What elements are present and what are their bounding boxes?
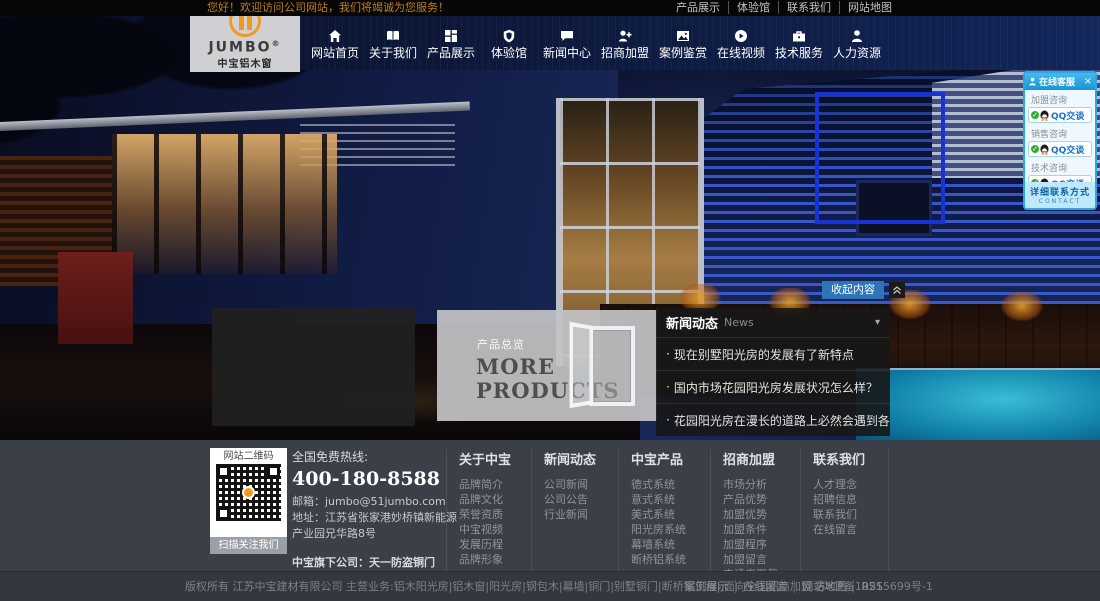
footer-column-title[interactable]: 联系我们 (813, 449, 888, 468)
footer-link[interactable]: 加盟留言 (723, 552, 800, 567)
footer-link[interactable]: 阳光房系统 (631, 522, 710, 537)
footer-link[interactable]: 加盟条件 (723, 522, 800, 537)
more-products-title: MORE (476, 354, 555, 379)
bottom-bar: 版权所有 江苏中宝建材有限公司 主营业务:铝木阳光房|铝木窗|阳光房|钢包木|幕… (0, 571, 1100, 601)
hotline-number: 400-180-8588 (292, 468, 460, 490)
bottom-link-message[interactable]: 在线留言 (735, 580, 794, 593)
email-line: 邮箱：jumbo@51jumbo.com (292, 494, 460, 510)
footer-column-title[interactable]: 新闻动态 (544, 449, 618, 468)
logo-brand: JUMBO® (190, 37, 300, 55)
bottom-link-cases[interactable]: 案例展示 (677, 580, 735, 593)
footer-column-news: 新闻动态 公司新闻 公司公告 行业新闻 (531, 449, 618, 582)
footer-link[interactable]: 招聘信息 (813, 492, 888, 507)
footer-link[interactable]: 美式系统 (631, 507, 710, 522)
detailed-contact-button[interactable]: 详细联系方式 CONTACT (1025, 182, 1095, 208)
footer-link[interactable]: 公司公告 (544, 492, 618, 507)
address-line: 地址：江苏省张家港妙桥镇新能源产业园兄华路8号 (292, 510, 460, 542)
topbar-link-sitemap[interactable]: 网站地图 (839, 1, 900, 14)
qq-penguin-icon (1039, 144, 1050, 155)
hotline-label: 全国免费热线: (292, 448, 460, 465)
footer-columns: 关于中宝 品牌简介 品牌文化 荣誉资质 中宝视频 发展历程 品牌形象 新闻动态 … (446, 449, 889, 582)
footer-link[interactable]: 联系我们 (813, 507, 888, 522)
hero-photo: 网站首页 关于我们 产品展示 体验馆 新闻中心 招商加盟 (0, 16, 1100, 440)
nav-item-cases[interactable]: 案例鉴赏 (655, 16, 711, 70)
nav-label: 在线视频 (713, 44, 769, 61)
topbar-link-experience[interactable]: 体验馆 (728, 1, 778, 14)
nav-label: 案例鉴赏 (655, 44, 711, 61)
nav-item-hr[interactable]: 人力资源 (829, 16, 885, 70)
nav-label: 新闻中心 (539, 44, 595, 61)
briefcase-icon (771, 25, 827, 41)
nav-item-videos[interactable]: 在线视频 (713, 16, 769, 70)
qq-chat-button-franchise[interactable]: ✓ QQ交谈 (1028, 107, 1092, 123)
footer-link[interactable]: 荣誉资质 (459, 507, 531, 522)
footer-column-title[interactable]: 关于中宝 (459, 449, 531, 468)
person-icon (1028, 77, 1037, 86)
registered-mark: ® (272, 39, 282, 48)
products-tag: 产品总览 (477, 336, 525, 352)
nav-item-home[interactable]: 网站首页 (307, 16, 363, 70)
shield-icon (481, 25, 537, 41)
news-item[interactable]: 花园阳光房在漫长的道路上必然会遇到各种挑战 (656, 403, 890, 436)
online-status-icon: ✓ (1031, 145, 1039, 153)
news-title: 新闻动态 (666, 313, 718, 332)
footer-column-franchise: 招商加盟 市场分析 产品优势 加盟优势 加盟条件 加盟程序 加盟留言 申请表下载 (710, 449, 800, 582)
double-chevron-up-icon (892, 285, 902, 295)
footer-link[interactable]: 品牌文化 (459, 492, 531, 507)
play-icon (713, 25, 769, 41)
qq-penguin-icon (1039, 110, 1050, 121)
grid-icon (423, 25, 479, 41)
footer-link[interactable]: 产品优势 (723, 492, 800, 507)
bottom-link-rss[interactable]: RSS (853, 580, 890, 593)
detailed-contact-sub: CONTACT (1025, 198, 1095, 205)
footer-link[interactable]: 发展历程 (459, 537, 531, 552)
news-header: 新闻动态 News ▾ (656, 308, 890, 337)
nav-label: 技术服务 (771, 44, 827, 61)
topbar-links: 产品展示体验馆联系我们网站地图 (668, 0, 900, 16)
footer-link[interactable]: 人才理念 (813, 477, 888, 492)
nav-label: 人力资源 (829, 44, 885, 61)
online-service-title: 在线客服 (1039, 75, 1075, 88)
nav-item-tech-service[interactable]: 技术服务 (771, 16, 827, 70)
footer-contact-block: 全国免费热线: 400-180-8588 邮箱：jumbo@51jumbo.co… (292, 448, 460, 570)
qr-center-logo (242, 486, 255, 499)
nav-label: 产品展示 (423, 44, 479, 61)
nav-item-about[interactable]: 关于我们 (365, 16, 421, 70)
bottom-link-sitemap[interactable]: 网站地图 (794, 580, 853, 593)
welcome-text: 您好！欢迎访问公司网站，我们将竭诚为您服务！ (207, 0, 449, 16)
footer-link[interactable]: 意式系统 (631, 492, 710, 507)
photo-icon (655, 25, 711, 41)
qr-code-image (216, 464, 281, 521)
more-products-panel[interactable]: 产品总览 MORE PRODUCTS (437, 310, 657, 421)
qq-chat-button-sales[interactable]: ✓ QQ交谈 (1028, 141, 1092, 157)
book-icon (365, 25, 421, 41)
footer-link[interactable]: 品牌简介 (459, 477, 531, 492)
user-icon (829, 25, 885, 41)
footer-link[interactable]: 德式系统 (631, 477, 710, 492)
footer-column-about: 关于中宝 品牌简介 品牌文化 荣誉资质 中宝视频 发展历程 品牌形象 (446, 449, 531, 582)
nav-label: 网站首页 (307, 44, 363, 61)
footer-link[interactable]: 市场分析 (723, 477, 800, 492)
news-subtitle: News (724, 316, 754, 329)
online-status-icon: ✓ (1031, 111, 1039, 119)
nav-label: 关于我们 (365, 44, 421, 61)
detailed-contact-label: 详细联系方式 (1025, 185, 1095, 198)
footer-link[interactable]: 幕墙系统 (631, 537, 710, 552)
dark-overlay-panel (212, 308, 415, 426)
news-item[interactable]: 现在别墅阳光房的发展有了新特点 (656, 337, 890, 370)
footer-column-contact: 联系我们 人才理念 招聘信息 联系我们 在线留言 (800, 449, 888, 582)
chevron-down-icon[interactable]: ▾ (875, 317, 880, 328)
nav-label: 招商加盟 (597, 44, 653, 61)
footer-link[interactable]: 加盟程序 (723, 537, 800, 552)
bottom-links: 案例展示在线留言网站地图RSS (677, 572, 890, 601)
footer-link[interactable]: 行业新闻 (544, 507, 618, 522)
nav-item-franchise[interactable]: 招商加盟 (597, 16, 653, 70)
news-item[interactable]: 国内市场花园阳光房发展状况怎么样？ (656, 370, 890, 403)
selection-rectangle (815, 92, 945, 224)
footer-column-title[interactable]: 中宝产品 (631, 449, 710, 468)
online-service-panel: 在线客服 × 加盟咨询 ✓ QQ交谈 销售咨询 ✓ QQ交谈 技术咨询 ✓ QQ… (1023, 71, 1097, 210)
news-panel: 新闻动态 News ▾ 现在别墅阳光房的发展有了新特点 国内市场花园阳光房发展状… (656, 308, 890, 436)
qr-title: 网站二维码 (210, 448, 287, 464)
qq-chat-label: QQ交谈 (1051, 109, 1084, 122)
footer-column-title[interactable]: 招商加盟 (723, 449, 800, 468)
main-nav: 网站首页 关于我们 产品展示 体验馆 新闻中心 招商加盟 (307, 16, 885, 70)
footer-link[interactable]: 断桥铝系统 (631, 552, 710, 567)
top-bar: 您好！欢迎访问公司网站，我们将竭诚为您服务！ 产品展示体验馆联系我们网站地图 (0, 0, 1100, 16)
qq-group-label: 销售咨询 (1025, 124, 1095, 141)
topbar-link-contact[interactable]: 联系我们 (778, 1, 839, 14)
chat-icon (539, 25, 595, 41)
footer-link[interactable]: 品牌形象 (459, 552, 531, 567)
qr-scan-label[interactable]: 扫描关注我们 (210, 537, 287, 554)
nav-item-products[interactable]: 产品展示 (423, 16, 479, 70)
home-icon (307, 25, 363, 41)
qq-group-label: 技术咨询 (1025, 158, 1095, 175)
footer-link[interactable]: 加盟优势 (723, 507, 800, 522)
page: 您好！欢迎访问公司网站，我们将竭诚为您服务！ 产品展示体验馆联系我们网站地图 (0, 0, 1100, 601)
nav-item-news[interactable]: 新闻中心 (539, 16, 595, 70)
qq-chat-label: QQ交谈 (1051, 143, 1084, 156)
footer-link[interactable]: 在线留言 (813, 522, 888, 537)
footer: 网站二维码 扫描关注我们 全国免费热线: 400-180-8588 邮箱：jum… (0, 440, 1100, 571)
topbar-link-products[interactable]: 产品展示 (668, 1, 728, 14)
footer-link[interactable]: 公司新闻 (544, 477, 618, 492)
footer-column-products: 中宝产品 德式系统 意式系统 美式系统 阳光房系统 幕墙系统 断桥铝系统 (618, 449, 710, 582)
nav-label: 体验馆 (481, 44, 537, 61)
user-plus-icon (597, 25, 653, 41)
qr-card: 网站二维码 扫描关注我们 (210, 448, 287, 554)
online-service-header: 在线客服 × (1025, 73, 1095, 90)
footer-link[interactable]: 中宝视频 (459, 522, 531, 537)
collapse-arrow-button[interactable] (889, 282, 905, 298)
window-product-image (557, 324, 635, 408)
nav-item-experience[interactable]: 体验馆 (481, 16, 537, 70)
subsidiary-line: 中宝旗下公司：天一防盗铜门 (292, 554, 460, 570)
close-icon[interactable]: × (1084, 77, 1092, 87)
qq-group-label: 加盟咨询 (1025, 90, 1095, 107)
collapse-content-button[interactable]: 收起内容 (822, 281, 884, 299)
logo-name-cn: 中宝铝木窗 (190, 55, 300, 70)
